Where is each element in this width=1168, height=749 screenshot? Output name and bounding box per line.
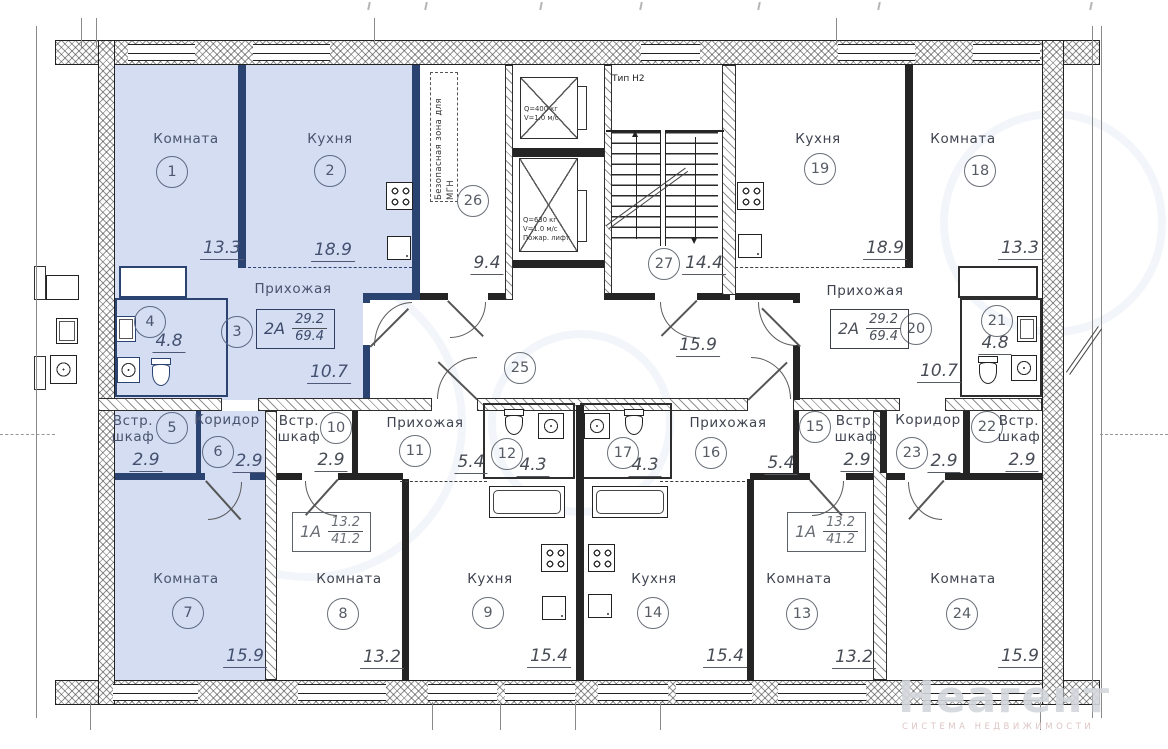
total-area: 69.4 bbox=[869, 329, 898, 345]
room-number: 6 bbox=[202, 436, 234, 468]
apartment-type: 1А bbox=[300, 522, 321, 541]
dimension-line bbox=[36, 26, 37, 718]
sink-icon bbox=[387, 236, 411, 260]
dimension-tick bbox=[374, 18, 375, 44]
room-area: 10.7 bbox=[917, 361, 961, 383]
window bbox=[113, 684, 198, 701]
centerline bbox=[1100, 434, 1168, 435]
toilet-icon bbox=[151, 358, 171, 387]
window bbox=[641, 44, 700, 61]
room-label: шкаф bbox=[112, 430, 155, 445]
dimension-tick bbox=[96, 18, 97, 48]
cut-text-mark bbox=[539, 2, 543, 10]
toilet-icon bbox=[504, 409, 524, 436]
stair-arrow-down: ▼ bbox=[691, 237, 697, 245]
room-label: Кухня bbox=[307, 132, 353, 147]
room-label: Комната bbox=[153, 572, 218, 587]
room-area: 5.4 bbox=[764, 453, 797, 475]
room-number: 11 bbox=[399, 435, 431, 467]
wall bbox=[55, 40, 1100, 65]
room-number: 19 bbox=[804, 153, 836, 185]
room-area: 13.3 bbox=[200, 238, 244, 260]
apartment-tag: 1А 13.241.2 bbox=[292, 512, 371, 552]
adjacent-fixture bbox=[50, 355, 77, 384]
wall bbox=[887, 473, 905, 480]
elevator-door bbox=[577, 86, 587, 130]
room-area: 13.3 bbox=[998, 238, 1042, 260]
room-number: 1 bbox=[156, 156, 188, 188]
zone-boundary bbox=[238, 267, 412, 268]
living-area: 29.2 bbox=[292, 312, 327, 329]
wall bbox=[250, 473, 265, 480]
wall bbox=[505, 65, 513, 300]
total-area: 41.2 bbox=[331, 532, 360, 548]
wall bbox=[363, 345, 370, 400]
room-area: 4.8 bbox=[152, 331, 185, 353]
room-number: 16 bbox=[695, 437, 727, 469]
dimension-line bbox=[1092, 26, 1093, 718]
stove-icon bbox=[386, 182, 413, 210]
room-number: 2 bbox=[314, 155, 346, 187]
toilet-icon bbox=[978, 356, 998, 385]
wall bbox=[265, 411, 277, 680]
wall bbox=[576, 405, 584, 680]
room-number: 7 bbox=[172, 597, 204, 629]
wall bbox=[793, 345, 800, 400]
room-label: шкаф bbox=[278, 430, 321, 445]
wall bbox=[846, 473, 873, 480]
room-area: 13.2 bbox=[832, 647, 876, 669]
wall bbox=[338, 473, 403, 480]
safe-zone-label: Безопасная зона для МГН bbox=[434, 76, 458, 200]
elevator-door bbox=[577, 190, 587, 242]
sink-icon bbox=[584, 413, 610, 439]
room-area: 4.8 bbox=[978, 333, 1011, 355]
zone-boundary bbox=[660, 481, 745, 482]
room-number: 26 bbox=[457, 185, 489, 217]
window bbox=[505, 684, 575, 701]
room-number: 15 bbox=[799, 411, 831, 443]
stove-icon bbox=[541, 544, 568, 572]
room-area: 18.9 bbox=[863, 238, 907, 260]
wall bbox=[747, 479, 754, 680]
room-area: 9.4 bbox=[470, 253, 503, 275]
elevator-speed: V=1.0 м/с bbox=[524, 114, 558, 123]
room-number: 23 bbox=[896, 437, 928, 469]
wall bbox=[98, 40, 115, 705]
wardrobe-icon bbox=[958, 266, 1038, 298]
wall bbox=[258, 398, 432, 411]
room-number: 9 bbox=[472, 597, 504, 629]
room-area: 13.2 bbox=[360, 647, 404, 669]
room-area: 4.3 bbox=[628, 455, 661, 477]
dimension-tick bbox=[575, 702, 576, 730]
wall bbox=[793, 398, 900, 411]
room-area: 2.9 bbox=[840, 450, 873, 472]
elevator-speed: V=1.0 м/с bbox=[523, 225, 570, 234]
wall bbox=[735, 293, 800, 300]
cut-text-mark bbox=[424, 2, 428, 10]
apartment-type: 1А bbox=[795, 522, 816, 541]
room-area: 15.9 bbox=[676, 335, 720, 357]
floor-plan: Q=400 кг V=1.0 м/с Q=630 кг V=1.0 м/с По… bbox=[0, 0, 1168, 749]
sink-icon bbox=[117, 357, 140, 383]
stove-icon bbox=[737, 182, 764, 210]
staircase bbox=[665, 132, 718, 244]
room-area: 18.9 bbox=[311, 240, 355, 262]
room-label: Прихожая bbox=[254, 282, 331, 297]
dimension-tick bbox=[500, 702, 501, 730]
room-label: Комната bbox=[766, 572, 831, 587]
centerline bbox=[0, 434, 55, 435]
dimension-tick bbox=[660, 702, 661, 730]
sink-icon bbox=[542, 596, 566, 620]
adjacent-fixture bbox=[46, 275, 79, 300]
wall bbox=[880, 411, 887, 473]
wall bbox=[98, 398, 222, 411]
living-area: 13.2 bbox=[823, 515, 858, 532]
room-label: Кухня bbox=[795, 132, 841, 147]
window bbox=[598, 684, 668, 701]
stove-icon bbox=[588, 544, 615, 572]
wall bbox=[352, 411, 358, 473]
living-area: 29.2 bbox=[866, 312, 901, 329]
room-label: Встр. bbox=[836, 414, 876, 429]
stair-type-label: Тип Н2 bbox=[612, 74, 645, 84]
room-number: 25 bbox=[504, 352, 536, 384]
apartment-tag: 1А 13.241.2 bbox=[787, 512, 866, 552]
room-number: 24 bbox=[946, 598, 978, 630]
room-label: шкаф bbox=[998, 430, 1041, 445]
room-label: Комната bbox=[316, 572, 381, 587]
room-number: 10 bbox=[320, 412, 352, 444]
wall bbox=[513, 260, 604, 268]
room-label: Кухня bbox=[467, 572, 513, 587]
wall bbox=[513, 148, 604, 157]
room-area: 14.4 bbox=[682, 253, 726, 275]
room-label: Прихожая bbox=[386, 416, 463, 431]
sink-icon bbox=[1011, 355, 1037, 381]
zone-boundary bbox=[400, 481, 487, 482]
adjacent-fixture bbox=[56, 318, 78, 344]
room-area: 15.4 bbox=[703, 646, 747, 668]
room-label: Прихожая bbox=[689, 416, 766, 431]
room-label: Комната bbox=[930, 572, 995, 587]
room-area: 10.7 bbox=[307, 362, 351, 384]
window bbox=[298, 684, 386, 701]
stair-arrow bbox=[695, 137, 696, 239]
room-number: 14 bbox=[637, 597, 669, 629]
wall bbox=[604, 293, 655, 300]
bathtub-icon bbox=[489, 486, 565, 518]
room-area: 15.9 bbox=[998, 646, 1042, 668]
wall bbox=[363, 293, 370, 303]
room-label: Встр. bbox=[113, 414, 153, 429]
cut-text-mark bbox=[367, 2, 371, 10]
cut-text-mark bbox=[757, 2, 761, 10]
watermark-title: Неагент bbox=[898, 672, 1110, 723]
cut-text-mark bbox=[639, 2, 643, 10]
sink-icon bbox=[588, 594, 612, 618]
watermark-subtitle: СИСТЕМА НЕДВИЖИМОСТИ bbox=[902, 722, 1094, 732]
elevator-label: Q=630 кг V=1.0 м/с Пожар. лифт bbox=[523, 216, 570, 242]
bathtub-icon bbox=[592, 486, 668, 518]
dimension-tick bbox=[90, 702, 91, 730]
zone-boundary bbox=[735, 267, 905, 268]
room-area: 2.9 bbox=[1005, 450, 1038, 472]
stair-arrow-up: ▲ bbox=[632, 130, 638, 138]
dimension-line bbox=[1101, 26, 1102, 718]
room-label: Комната bbox=[930, 132, 995, 147]
wall bbox=[115, 473, 205, 480]
elevator-capacity: Q=630 кг bbox=[523, 216, 570, 225]
total-area: 69.4 bbox=[295, 329, 324, 345]
room-label: шкаф bbox=[835, 430, 878, 445]
window bbox=[778, 684, 866, 701]
room-area: 2.9 bbox=[232, 451, 265, 473]
room-label: Прихожая bbox=[826, 284, 903, 299]
elevator-capacity: Q=400 кг bbox=[524, 105, 558, 114]
wall bbox=[945, 473, 1042, 480]
window bbox=[428, 684, 497, 701]
apartment-tag: 2А 29.269.4 bbox=[256, 309, 335, 349]
sink-icon bbox=[538, 413, 564, 439]
room-area: 2.9 bbox=[129, 450, 162, 472]
wall bbox=[363, 293, 420, 300]
toilet-icon bbox=[624, 409, 644, 436]
wall bbox=[488, 293, 505, 300]
window bbox=[128, 44, 195, 61]
room-label: Коридор bbox=[895, 413, 961, 428]
cut-text-mark bbox=[1089, 2, 1093, 10]
dimension-tick bbox=[432, 702, 433, 730]
stair-arrow bbox=[636, 137, 637, 239]
room-number: 13 bbox=[786, 598, 818, 630]
window bbox=[253, 44, 330, 61]
fire-elevator-label: Пожар. лифт bbox=[523, 234, 570, 243]
wall bbox=[412, 65, 420, 295]
room-area: 15.9 bbox=[223, 646, 267, 668]
apartment-type: 2А bbox=[264, 319, 285, 338]
room-label: Комната bbox=[153, 132, 218, 147]
room-label: Встр. bbox=[279, 414, 319, 429]
window bbox=[838, 44, 915, 61]
dimension-tick bbox=[81, 18, 82, 48]
room-label: Коридор bbox=[194, 413, 260, 428]
wall bbox=[1042, 40, 1064, 705]
room-area: 2.9 bbox=[314, 450, 347, 472]
room-area: 2.9 bbox=[927, 451, 960, 473]
room-area: 4.3 bbox=[516, 455, 549, 477]
cut-text-mark bbox=[877, 2, 881, 10]
living-area: 13.2 bbox=[328, 515, 363, 532]
total-area: 41.2 bbox=[826, 532, 855, 548]
room-number: 8 bbox=[327, 598, 359, 630]
room-label: Кухня bbox=[631, 572, 677, 587]
wall bbox=[963, 411, 970, 473]
room-label: Встр. bbox=[999, 414, 1039, 429]
apartment-tag: 2А 29.269.4 bbox=[830, 309, 909, 349]
apartment-type: 2А bbox=[838, 319, 859, 338]
wall bbox=[945, 398, 1042, 411]
room-area: 15.4 bbox=[527, 646, 571, 668]
wall bbox=[277, 473, 302, 480]
room-number: 18 bbox=[964, 155, 996, 187]
bath-door-icon bbox=[1017, 316, 1037, 342]
room-area: 5.4 bbox=[454, 452, 487, 474]
elevator-label: Q=400 кг V=1.0 м/с bbox=[524, 105, 558, 123]
window bbox=[973, 44, 1040, 61]
dimension-tick bbox=[836, 18, 837, 44]
wardrobe-icon bbox=[119, 266, 187, 298]
wall bbox=[420, 293, 448, 300]
bath-door-icon bbox=[116, 316, 136, 342]
room-number: 3 bbox=[221, 316, 253, 348]
room-number: 27 bbox=[648, 248, 680, 280]
room-number: 5 bbox=[156, 412, 188, 444]
window bbox=[676, 684, 752, 701]
sink-icon bbox=[738, 234, 762, 258]
